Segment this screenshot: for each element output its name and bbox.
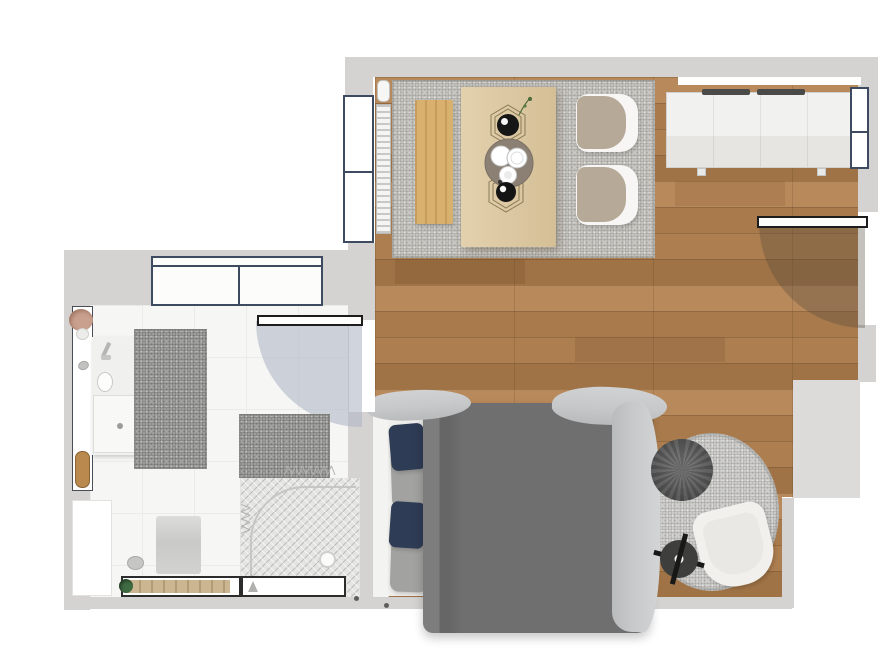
side-table-top xyxy=(660,540,698,578)
window-mullion xyxy=(852,131,867,133)
wood-plank-streak xyxy=(395,259,525,284)
towel-rail-icon: ⋀⋀⋀⋀⋀⋀⋀ xyxy=(284,466,334,476)
storage-cabinet[interactable] xyxy=(72,500,112,596)
basin-tap xyxy=(117,423,123,429)
right-wall-window[interactable] xyxy=(850,87,869,169)
sideboard-handle xyxy=(757,89,805,95)
wooden-tray xyxy=(75,451,90,488)
dining-chair-seat xyxy=(577,167,626,222)
wall-towel[interactable] xyxy=(156,516,201,574)
wardrobe[interactable] xyxy=(151,256,323,306)
wardrobe-divider xyxy=(238,265,240,304)
wall-right-lower xyxy=(780,498,794,608)
sideboard-foot xyxy=(817,168,826,176)
side-table[interactable] xyxy=(657,537,701,581)
wall-mass-right xyxy=(792,380,860,498)
vase xyxy=(76,328,89,340)
bath-rug-large[interactable] xyxy=(134,329,207,469)
throw-blanket xyxy=(612,402,660,632)
pillow-navy xyxy=(388,501,426,549)
dining-chair-shell[interactable] xyxy=(576,94,638,152)
towel-rail-icon: ⋀⋀⋀⋀ xyxy=(240,504,250,533)
radiator[interactable] xyxy=(376,104,391,234)
bathroom-door[interactable] xyxy=(257,315,363,326)
pillow-navy xyxy=(388,423,427,472)
wall-top xyxy=(345,57,878,77)
faucet-icon xyxy=(101,355,111,360)
sideboard-foot xyxy=(697,168,706,176)
door-stop xyxy=(384,603,389,608)
dining-chair-shell[interactable] xyxy=(576,165,638,225)
sideboard[interactable] xyxy=(666,92,854,168)
wall-right-mid xyxy=(858,325,876,382)
wood-plank-streak xyxy=(675,181,785,206)
tabletop-decor xyxy=(461,87,556,247)
pebble-decor xyxy=(127,556,144,570)
entry-door[interactable] xyxy=(757,216,868,228)
wall-top-left-corner xyxy=(345,77,373,97)
knitted-pouf[interactable] xyxy=(651,439,713,501)
left-wall-window[interactable] xyxy=(343,95,374,243)
dining-table[interactable] xyxy=(461,87,556,247)
radiator-valve xyxy=(377,80,390,102)
dining-chair-seat xyxy=(577,96,626,149)
window-bench[interactable] xyxy=(121,576,241,597)
potted-plant xyxy=(119,579,133,593)
window-mullion xyxy=(345,171,372,173)
soap-dish xyxy=(97,372,113,392)
wardrobe-front-line xyxy=(153,265,321,267)
window-bench-wood xyxy=(127,580,230,593)
wood-plank-streak xyxy=(575,337,725,362)
side-table-center xyxy=(675,555,684,564)
bed-headboard xyxy=(372,404,389,598)
bottom-window[interactable] xyxy=(241,576,346,597)
sideboard-handle xyxy=(702,89,750,95)
wooden-bench[interactable] xyxy=(415,100,453,224)
wall-bottom-bathroom xyxy=(64,597,360,609)
shower-head xyxy=(319,551,336,568)
transom-window[interactable] xyxy=(678,77,861,85)
sprinkler-icon xyxy=(248,581,258,592)
door-stop xyxy=(354,596,359,601)
floor-plan-canvas: ⋀⋀⋀⋀⋀⋀⋀ ⋀⋀⋀⋀ xyxy=(0,0,896,655)
